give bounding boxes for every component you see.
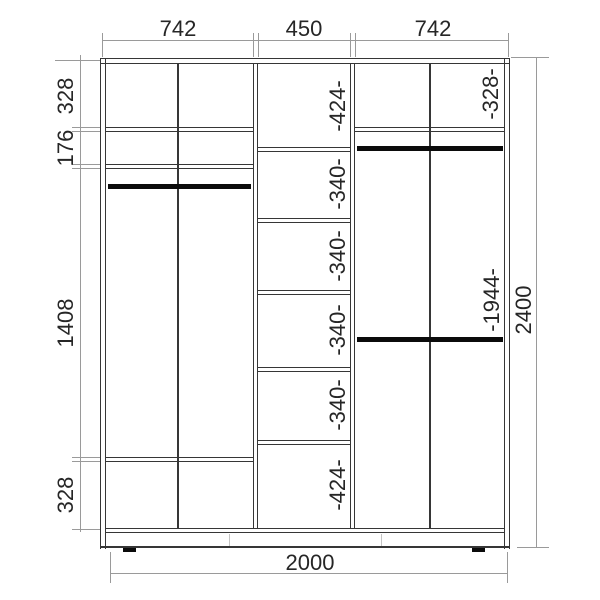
dim-label-middle-424-bottom: -424-: [327, 459, 349, 510]
dim-label-left-1408: 1408: [55, 299, 77, 348]
middle-shelf-3: [258, 290, 350, 295]
base-plinth-line: [100, 546, 510, 548]
dim-label-middle-340-4: -340-: [327, 379, 349, 430]
partition-left-middle: [253, 64, 258, 528]
left-dim-tick: [72, 168, 100, 169]
bottom-dim-tick: [507, 552, 508, 583]
dim-label-top-742-left: 742: [160, 18, 197, 40]
dim-label-top-450: 450: [286, 18, 323, 40]
left-shelf-2: [106, 164, 253, 169]
left-shelf-3: [106, 457, 253, 462]
dim-label-bottom-2000: 2000: [286, 552, 335, 574]
right-section-center-divider: [429, 64, 431, 528]
partition-middle-right: [350, 64, 355, 528]
left-shelf-1: [106, 127, 253, 132]
left-foot: [123, 548, 136, 552]
dim-label-right-328: -328-: [480, 68, 502, 119]
right-hanging-rod-upper: [357, 146, 503, 151]
dim-label-middle-340-2: -340-: [327, 230, 349, 281]
dim-label-left-328-bottom: 328: [55, 477, 77, 514]
left-dim-tick: [55, 60, 100, 61]
dim-label-left-328-top: 328: [55, 78, 77, 115]
dim-label-left-176: 176: [55, 130, 77, 167]
bottom-panel: [106, 528, 504, 533]
dim-label-middle-424-top: -424-: [327, 80, 349, 131]
left-dim-tick: [72, 461, 100, 462]
left-dim-tick: [72, 529, 100, 530]
top-dim-tick: [508, 33, 509, 57]
right-foot: [472, 548, 485, 552]
left-dim-tick: [72, 127, 100, 128]
right-dimension-line: [536, 57, 537, 548]
dim-label-right-2400: 2400: [513, 286, 535, 335]
right-dim-tick: [511, 57, 549, 58]
top-dim-tick: [355, 33, 356, 57]
plinth-mark-right: [381, 534, 382, 546]
plinth-mark-left: [229, 534, 230, 546]
right-side-panel: [504, 58, 510, 549]
bottom-dim-tick: [110, 552, 111, 583]
top-dim-tick: [350, 33, 351, 57]
top-dim-tick: [253, 33, 254, 57]
dim-label-middle-340-3: -340-: [327, 304, 349, 355]
dim-label-right-1944: -1944-: [481, 268, 503, 332]
middle-shelf-5: [258, 440, 350, 445]
right-shelf-1: [355, 127, 504, 132]
top-dim-tick: [258, 33, 259, 57]
middle-shelf-4: [258, 367, 350, 372]
left-hanging-rod: [108, 184, 251, 189]
right-dim-tick: [517, 547, 549, 548]
top-dim-tick: [102, 33, 103, 57]
top-panel: [100, 58, 510, 64]
middle-shelf-2: [258, 218, 350, 223]
dim-label-middle-340-1: -340-: [327, 158, 349, 209]
middle-shelf-1: [258, 147, 350, 152]
right-hanging-rod-lower: [357, 337, 503, 342]
wardrobe-dimension-drawing: 742 450 742 328 176 1408 328 2400 2000 -…: [0, 0, 600, 600]
dim-label-top-742-right: 742: [415, 18, 452, 40]
left-dim-tick: [72, 457, 100, 458]
